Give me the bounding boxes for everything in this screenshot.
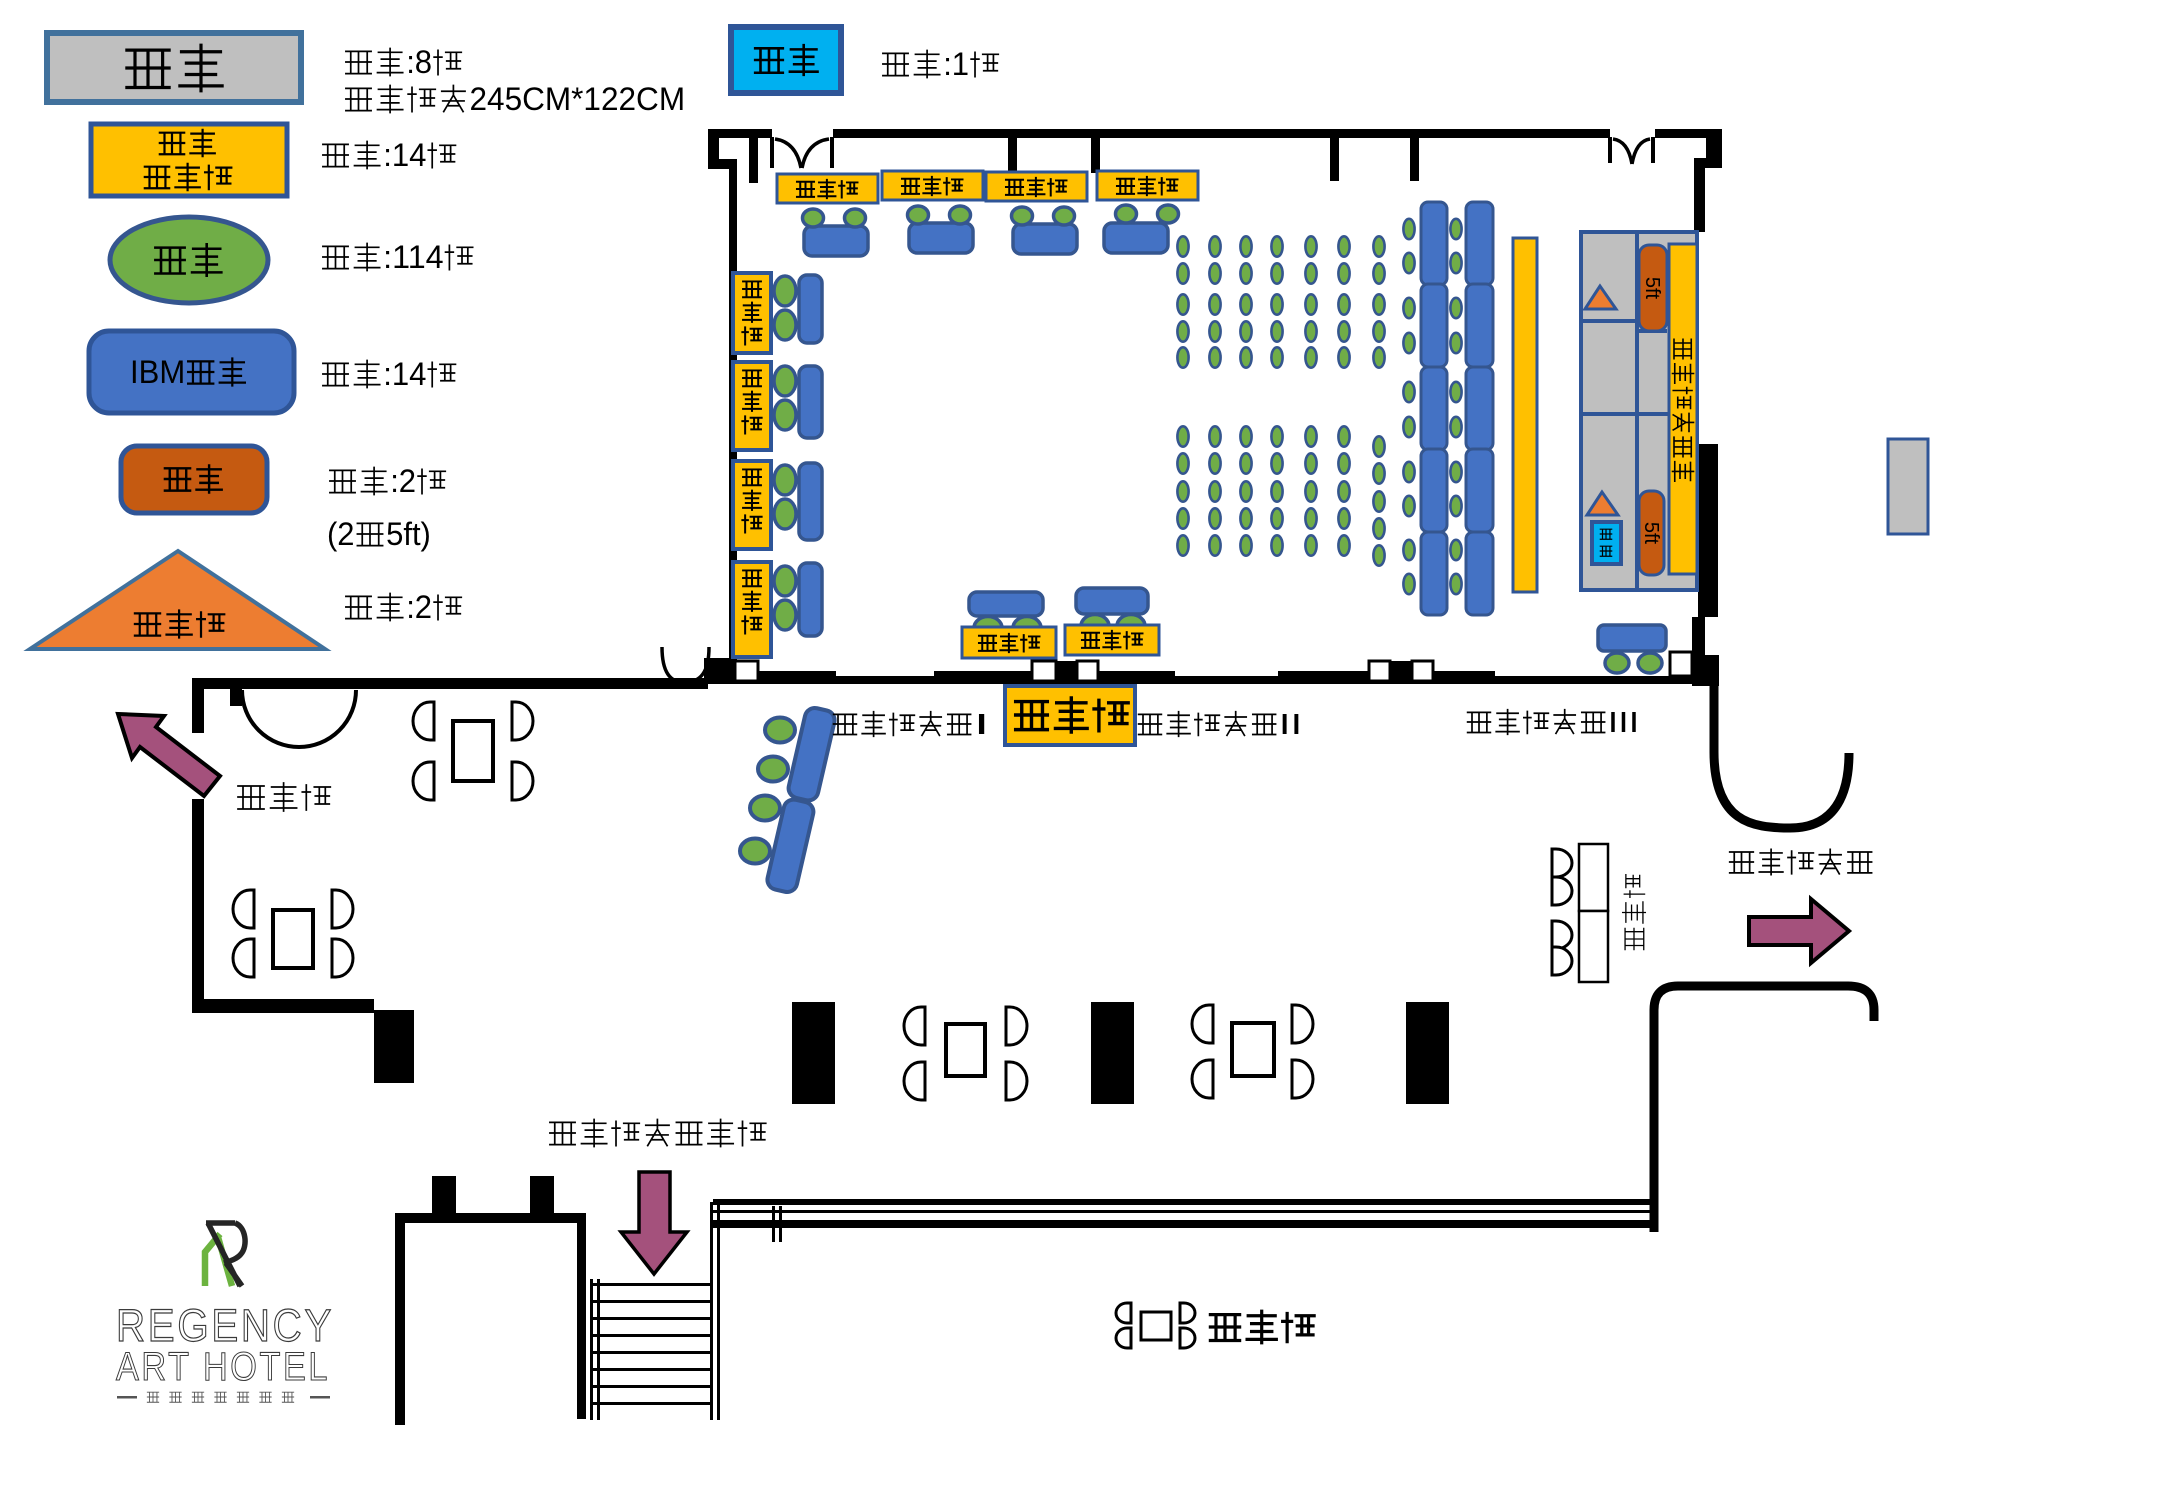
svg-text:5ft: 5ft: [1640, 522, 1662, 545]
svg-text:IBM: IBM: [130, 354, 185, 390]
svg-text:II: II: [1279, 709, 1303, 741]
svg-text:III: III: [1608, 707, 1639, 739]
svg-text:(2: (2: [327, 516, 355, 552]
svg-text::14: :14: [383, 137, 426, 173]
svg-text:I: I: [974, 709, 990, 741]
svg-text:5ft): 5ft): [386, 516, 431, 552]
svg-text::8: :8: [406, 44, 432, 80]
svg-text:245CM*122CM: 245CM*122CM: [470, 81, 686, 117]
svg-text:5ft: 5ft: [1641, 277, 1663, 300]
svg-text::14: :14: [383, 356, 426, 392]
svg-text::2: :2: [406, 589, 432, 625]
svg-text::114: :114: [383, 239, 443, 275]
svg-text::1: :1: [943, 46, 969, 82]
svg-text:ART HOTEL: ART HOTEL: [116, 1345, 330, 1389]
svg-text:REGENCY: REGENCY: [116, 1300, 334, 1351]
svg-text::2: :2: [390, 463, 416, 499]
